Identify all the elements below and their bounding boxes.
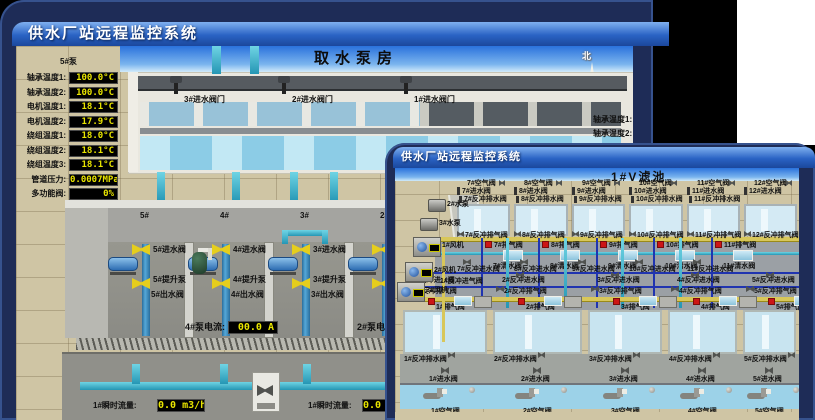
clean-water-tank bbox=[719, 296, 737, 306]
inlet-valve-label: 9#进水阀 bbox=[577, 188, 606, 196]
corridor-equipment-box bbox=[474, 296, 492, 308]
blower-label: 2#风机 bbox=[434, 267, 456, 275]
inlet-valve-label: 10#进水阀 bbox=[634, 188, 667, 196]
elbow-pipe-tip bbox=[534, 389, 539, 394]
filter-cell-bottom[interactable] bbox=[403, 310, 487, 354]
inlet-valve-stem bbox=[457, 187, 460, 195]
clean-water-tank bbox=[794, 296, 799, 306]
intake-valve-label: 2#进水阀门 bbox=[292, 96, 333, 105]
panel-row-value: 100.0°C bbox=[69, 72, 118, 84]
filter-cell-bottom[interactable] bbox=[493, 310, 582, 354]
lift-pump-base bbox=[270, 272, 296, 275]
cell-water-streak bbox=[615, 315, 622, 349]
backwash-exhaust-valve-label: 4#反冲排气阀 bbox=[679, 288, 722, 296]
panel-row-label: 多功能阀: bbox=[20, 190, 66, 199]
exhaust-valve-icon[interactable] bbox=[613, 298, 620, 305]
backwash-drain-valve-label: 11#反冲排水阀 bbox=[694, 196, 740, 204]
backwash-exhaust-valve-label: 3#反冲排气阀 bbox=[599, 288, 642, 296]
pipe-riser bbox=[232, 172, 240, 202]
cabinet-base bbox=[257, 403, 275, 409]
compass-north: 北 bbox=[582, 52, 591, 61]
outlet-valve-label: 4#出水阀 bbox=[231, 291, 264, 300]
intake-valve-label: 3#进水阀门 bbox=[184, 96, 225, 105]
inlet-valve-label: 3#进水阀 bbox=[313, 246, 346, 255]
clean-water-tank bbox=[454, 296, 472, 306]
pump-bay-pipe bbox=[302, 244, 310, 336]
cell-water-streak bbox=[474, 209, 481, 231]
panel-row-label: 管道压力: bbox=[20, 176, 66, 185]
exhaust-valve-icon[interactable] bbox=[693, 298, 700, 305]
exhaust-valve-label: 10#排气阀 bbox=[666, 242, 699, 250]
blower-label: 3#风机 bbox=[426, 287, 448, 295]
backwash-pump-icon[interactable] bbox=[428, 199, 446, 212]
backwash-exhaust-valve-label: 8#反冲排气阀 bbox=[522, 232, 565, 240]
lift-pump-icon[interactable] bbox=[268, 257, 298, 271]
clean-water-tank bbox=[639, 296, 657, 306]
backwash-drain-valve-stem bbox=[574, 196, 577, 203]
exhaust-valve-icon[interactable] bbox=[657, 241, 664, 248]
backwash-pump-label: 2#水泵 bbox=[447, 201, 469, 209]
panel-row-label: 绕组温度2: bbox=[20, 147, 66, 156]
back-window-title: 供水厂站远程监控系统 bbox=[28, 25, 198, 42]
channel-float-ball bbox=[793, 387, 799, 393]
cell-water-streak bbox=[693, 315, 700, 349]
cell-water-streak bbox=[525, 315, 532, 349]
pump-bay-number: 3# bbox=[300, 212, 309, 221]
inlet-valve-stem bbox=[629, 187, 632, 195]
lift-pump-base bbox=[350, 272, 376, 275]
backwash-drain-valve-stem bbox=[631, 196, 634, 203]
panel-row-label: 轴承温度2: bbox=[20, 89, 66, 98]
clean-water-tank bbox=[733, 250, 753, 261]
clean-water-tank bbox=[675, 250, 695, 261]
backwash-exhaust-valve-label: 7#反冲排气阀 bbox=[465, 232, 508, 240]
scada-desktop: 供水厂站远程监控系统 取水泵房 北 西 南 东 1 5#泵 轴承温度1:100.… bbox=[0, 0, 815, 420]
elbow-pipe-tip bbox=[622, 389, 627, 394]
blower-motor-icon bbox=[409, 267, 419, 277]
backwash-inlet-valve-label: 2#反冲进水阀 bbox=[502, 277, 545, 285]
intake-valve-stem[interactable] bbox=[174, 82, 178, 94]
air-valve-label: 8#空气阀 bbox=[524, 180, 553, 188]
backwash-drain-valve-label: 8#反冲排水阀 bbox=[521, 196, 564, 204]
intake-valve-stem[interactable] bbox=[282, 82, 286, 94]
pump-current-value: 00.0 A bbox=[228, 321, 278, 334]
pipe-stub bbox=[220, 364, 228, 384]
backwash-pump-icon[interactable] bbox=[420, 218, 438, 231]
elbow-pipe-tip bbox=[766, 389, 771, 394]
lift-pump-label: 4#提升泵 bbox=[233, 276, 266, 285]
air-valve-label: 10#空气阀 bbox=[639, 180, 672, 188]
panel-row-label: 电机温度1: bbox=[20, 103, 66, 112]
main-pipe bbox=[80, 382, 392, 390]
panel-row-label: 绕组温度3: bbox=[20, 161, 66, 170]
outlet-valve-label: 3#出水阀 bbox=[311, 291, 344, 300]
filter-pool-window[interactable]: 供水厂站远程监控系统 1#V滤池 7#空气阀8#空气阀9#空气阀10#空气阀11… bbox=[385, 143, 815, 420]
basin-left-wall bbox=[128, 72, 138, 172]
inlet-valve-label: 11#进水阀 bbox=[692, 188, 724, 196]
backwash-exhaust-valve-label: 10#反冲排气阀 bbox=[637, 232, 684, 240]
pipe-riser bbox=[330, 172, 338, 202]
inlet-valve-stem bbox=[744, 187, 747, 195]
pipe-stub bbox=[303, 364, 311, 384]
cell-water-streak bbox=[704, 209, 711, 231]
backwash-inlet-valve-label: 7#反冲进水阀 bbox=[457, 266, 500, 274]
blower-unit[interactable] bbox=[405, 262, 433, 282]
pump-bay-number: 4# bbox=[220, 212, 229, 221]
air-valve-label: 12#空气阀 bbox=[754, 180, 787, 188]
basin-row1-far-section bbox=[420, 102, 621, 126]
back-window-titlebar[interactable]: 供水厂站远程监控系统 bbox=[12, 22, 669, 46]
channel-float-ball bbox=[726, 387, 732, 393]
backwash-exhaust-valve-label: 11#反冲排气阀 bbox=[695, 232, 741, 240]
cell-water-streak bbox=[762, 315, 769, 349]
filter-pool-scene: 1#V滤池 7#空气阀8#空气阀9#空气阀10#空气阀11#空气阀12#空气阀7… bbox=[395, 168, 799, 420]
backwash-inlet-valve-label: 11#反冲进水阀 bbox=[687, 266, 733, 274]
pipe-riser bbox=[290, 172, 298, 202]
pipe-stub bbox=[132, 364, 140, 384]
exhaust-valve-icon[interactable] bbox=[518, 298, 525, 305]
blower-status-chip bbox=[413, 289, 424, 297]
channel-float-ball bbox=[649, 387, 655, 393]
front-window-title: 供水厂站远程监控系统 bbox=[401, 151, 521, 163]
pump-bay-number: 5# bbox=[140, 212, 149, 221]
right-panel-row-label: 轴承温度1: bbox=[593, 116, 632, 125]
blower-label: 1#风机 bbox=[442, 242, 464, 250]
pump-house-west-wall bbox=[65, 208, 108, 338]
lift-pump-base bbox=[110, 272, 136, 275]
backwash-drain-valve-label: 7#反冲排水阀 bbox=[464, 196, 507, 204]
backwash-inlet-valve-label: 3#反冲进水阀 bbox=[597, 277, 640, 285]
corridor-equipment-box bbox=[659, 296, 677, 308]
panel-row-value: 18.1°C bbox=[69, 159, 118, 171]
pump-current-label: 4#泵电流: bbox=[185, 323, 225, 333]
backwash-inlet-valve-label: 10#反冲进水阀 bbox=[629, 266, 676, 274]
cell-water-streak bbox=[761, 209, 768, 231]
inlet-valve-label: 7#进水阀 bbox=[462, 188, 491, 196]
front-apron bbox=[395, 412, 799, 420]
panel-row-label: 绕组温度1: bbox=[20, 132, 66, 141]
green-tank bbox=[192, 252, 207, 274]
pump-panel-header: 5#泵 bbox=[60, 58, 77, 67]
panel-row-value: 17.9°C bbox=[69, 116, 118, 128]
pipe-arch-right bbox=[322, 230, 328, 244]
backwash-drain-valve-label: 1#反冲排水阀 bbox=[404, 356, 447, 364]
inlet-valve-label: 5#进水阀 bbox=[153, 246, 186, 255]
blower-status-chip bbox=[429, 244, 440, 252]
backwash-exhaust-valve-label: 2#反冲排气阀 bbox=[504, 288, 547, 296]
panel-row-value: 0.0007MPa bbox=[69, 174, 118, 186]
inlet-valve-stem bbox=[687, 187, 690, 195]
channel-float-ball bbox=[561, 387, 567, 393]
backwash-inlet-valve-label: 5#反冲进水阀 bbox=[752, 277, 795, 285]
backwash-drain-valve-label: 2#反冲排水阀 bbox=[494, 356, 537, 364]
intake-valve-icon[interactable] bbox=[278, 76, 290, 83]
outlet-valve-label: 5#出水阀 bbox=[151, 291, 184, 300]
backwash-exhaust-valve-label: 9#反冲排气阀 bbox=[580, 232, 623, 240]
desktop-white-patch bbox=[737, 0, 815, 145]
cell-water-streak bbox=[433, 315, 440, 349]
backwash-inlet-valve-label: 8#反冲进水阀 bbox=[514, 266, 557, 274]
basin-mid-band bbox=[140, 128, 621, 134]
backwash-pump-label: 3#水泵 bbox=[439, 220, 461, 228]
hatched-strip bbox=[76, 338, 386, 350]
flow-meter-value: 0.0 m3/h bbox=[157, 399, 205, 412]
blower-unit[interactable] bbox=[397, 282, 425, 302]
filter-cell-bottom[interactable] bbox=[668, 310, 737, 354]
cell-water-streak bbox=[646, 209, 653, 231]
panel-row-value: 0% bbox=[69, 188, 118, 200]
lift-pump-icon[interactable] bbox=[108, 257, 138, 271]
white-pipe-v bbox=[208, 248, 212, 260]
air-valve-label: 11#空气阀 bbox=[697, 180, 729, 188]
panel-row-value: 18.1°C bbox=[69, 145, 118, 157]
cell-water-streak bbox=[589, 209, 596, 231]
right-panel-row-label: 轴承温度2: bbox=[593, 130, 632, 139]
cabinet-valve-icon bbox=[257, 385, 273, 396]
pump-bay-pipe bbox=[142, 244, 150, 336]
backwash-drain-valve-label: 5#反冲排水阀 bbox=[744, 356, 787, 364]
backwash-drain-valve-label: 10#反冲排水阀 bbox=[636, 196, 683, 204]
blower-motor-icon bbox=[401, 287, 411, 297]
channel-float-ball bbox=[469, 387, 475, 393]
elbow-pipe-tip bbox=[699, 389, 704, 394]
backwash-exhaust-valve-label: 12#反冲排气阀 bbox=[752, 232, 799, 240]
filter-cell-bottom[interactable] bbox=[743, 310, 796, 354]
backwash-exhaust-valve-label: 5#反冲排气阀 bbox=[754, 288, 797, 296]
exhaust-valve-icon[interactable] bbox=[485, 241, 492, 248]
intake-valve-icon[interactable] bbox=[170, 76, 182, 83]
intake-valve-label: 1#进水阀门 bbox=[414, 96, 455, 105]
exhaust-valve-icon[interactable] bbox=[600, 241, 607, 248]
pipe-arch-left bbox=[282, 230, 288, 244]
backwash-drain-valve-label: 3#反冲排水阀 bbox=[589, 356, 632, 364]
backwash-inlet-valve-label: 9#反冲进水阀 bbox=[572, 266, 615, 274]
backwash-drain-valve-label: 4#反冲排水阀 bbox=[669, 356, 712, 364]
exhaust-valve-icon[interactable] bbox=[715, 241, 722, 248]
inlet-valve-label: 12#进水阀 bbox=[749, 188, 782, 196]
panel-row-label: 轴承温度1: bbox=[20, 74, 66, 83]
lift-pump-label: 3#提升泵 bbox=[313, 276, 346, 285]
panel-row-value: 100.0°C bbox=[69, 87, 118, 99]
inlet-valve-label: 4#进水阀 bbox=[233, 246, 266, 255]
inlet-valve-label: 8#进水阀 bbox=[519, 188, 548, 196]
inlet-channel bbox=[400, 383, 799, 409]
inlet-valve-stem bbox=[514, 187, 517, 195]
flow-meter-label: 1#瞬时流量: bbox=[93, 402, 137, 411]
pipe-riser bbox=[212, 46, 221, 74]
exhaust-valve-icon[interactable] bbox=[542, 241, 549, 248]
exhaust-valve-label: 11#排气阀 bbox=[724, 242, 756, 250]
backwash-air-inlet-valve-label: 1#反冲进气阀 bbox=[440, 278, 483, 286]
intake-valve-icon[interactable] bbox=[400, 76, 412, 83]
intake-valve-stem[interactable] bbox=[404, 82, 408, 94]
lift-pump-label: 5#提升泵 bbox=[153, 276, 186, 285]
flow-meter-cabinet[interactable] bbox=[252, 372, 280, 412]
room-title: 取水泵房 bbox=[314, 51, 398, 68]
clean-water-tank bbox=[560, 250, 580, 261]
elbow-pipe-tip bbox=[442, 389, 447, 394]
corridor-equipment-box bbox=[564, 296, 582, 308]
backwash-drain-valve-label: 9#反冲排水阀 bbox=[579, 196, 622, 204]
air-valve-label: 7#空气阀 bbox=[467, 180, 496, 188]
blower-motor-icon bbox=[417, 242, 427, 252]
inlet-valve-stem bbox=[572, 187, 575, 195]
exhaust-valve-icon[interactable] bbox=[768, 298, 775, 305]
air-valve-label: 9#空气阀 bbox=[582, 180, 611, 188]
basin-walkway bbox=[134, 76, 627, 91]
backwash-drain-valve-stem bbox=[516, 196, 519, 203]
pipe-riser bbox=[250, 46, 259, 74]
corridor-equipment-box bbox=[739, 296, 757, 308]
blower-unit[interactable] bbox=[413, 237, 441, 257]
cell-water-streak bbox=[531, 209, 538, 231]
exhaust-valve-icon[interactable] bbox=[428, 298, 435, 305]
pipe-riser bbox=[157, 172, 165, 202]
front-window-titlebar[interactable]: 供水厂站远程监控系统 bbox=[393, 147, 815, 168]
backwash-drain-valve-stem bbox=[689, 196, 692, 203]
clean-water-tank bbox=[544, 296, 562, 306]
filter-cell-bottom[interactable] bbox=[588, 310, 662, 354]
blower-status-chip bbox=[421, 269, 432, 277]
flow-meter-label: 1#瞬时流量: bbox=[308, 402, 352, 411]
lift-pump-icon[interactable] bbox=[348, 257, 378, 271]
panel-row-label: 电机温度2: bbox=[20, 118, 66, 127]
panel-row-value: 18.1°C bbox=[69, 101, 118, 113]
panel-row-value: 18.0°C bbox=[69, 130, 118, 142]
backwash-inlet-valve-label: 4#反冲进水阀 bbox=[677, 277, 720, 285]
